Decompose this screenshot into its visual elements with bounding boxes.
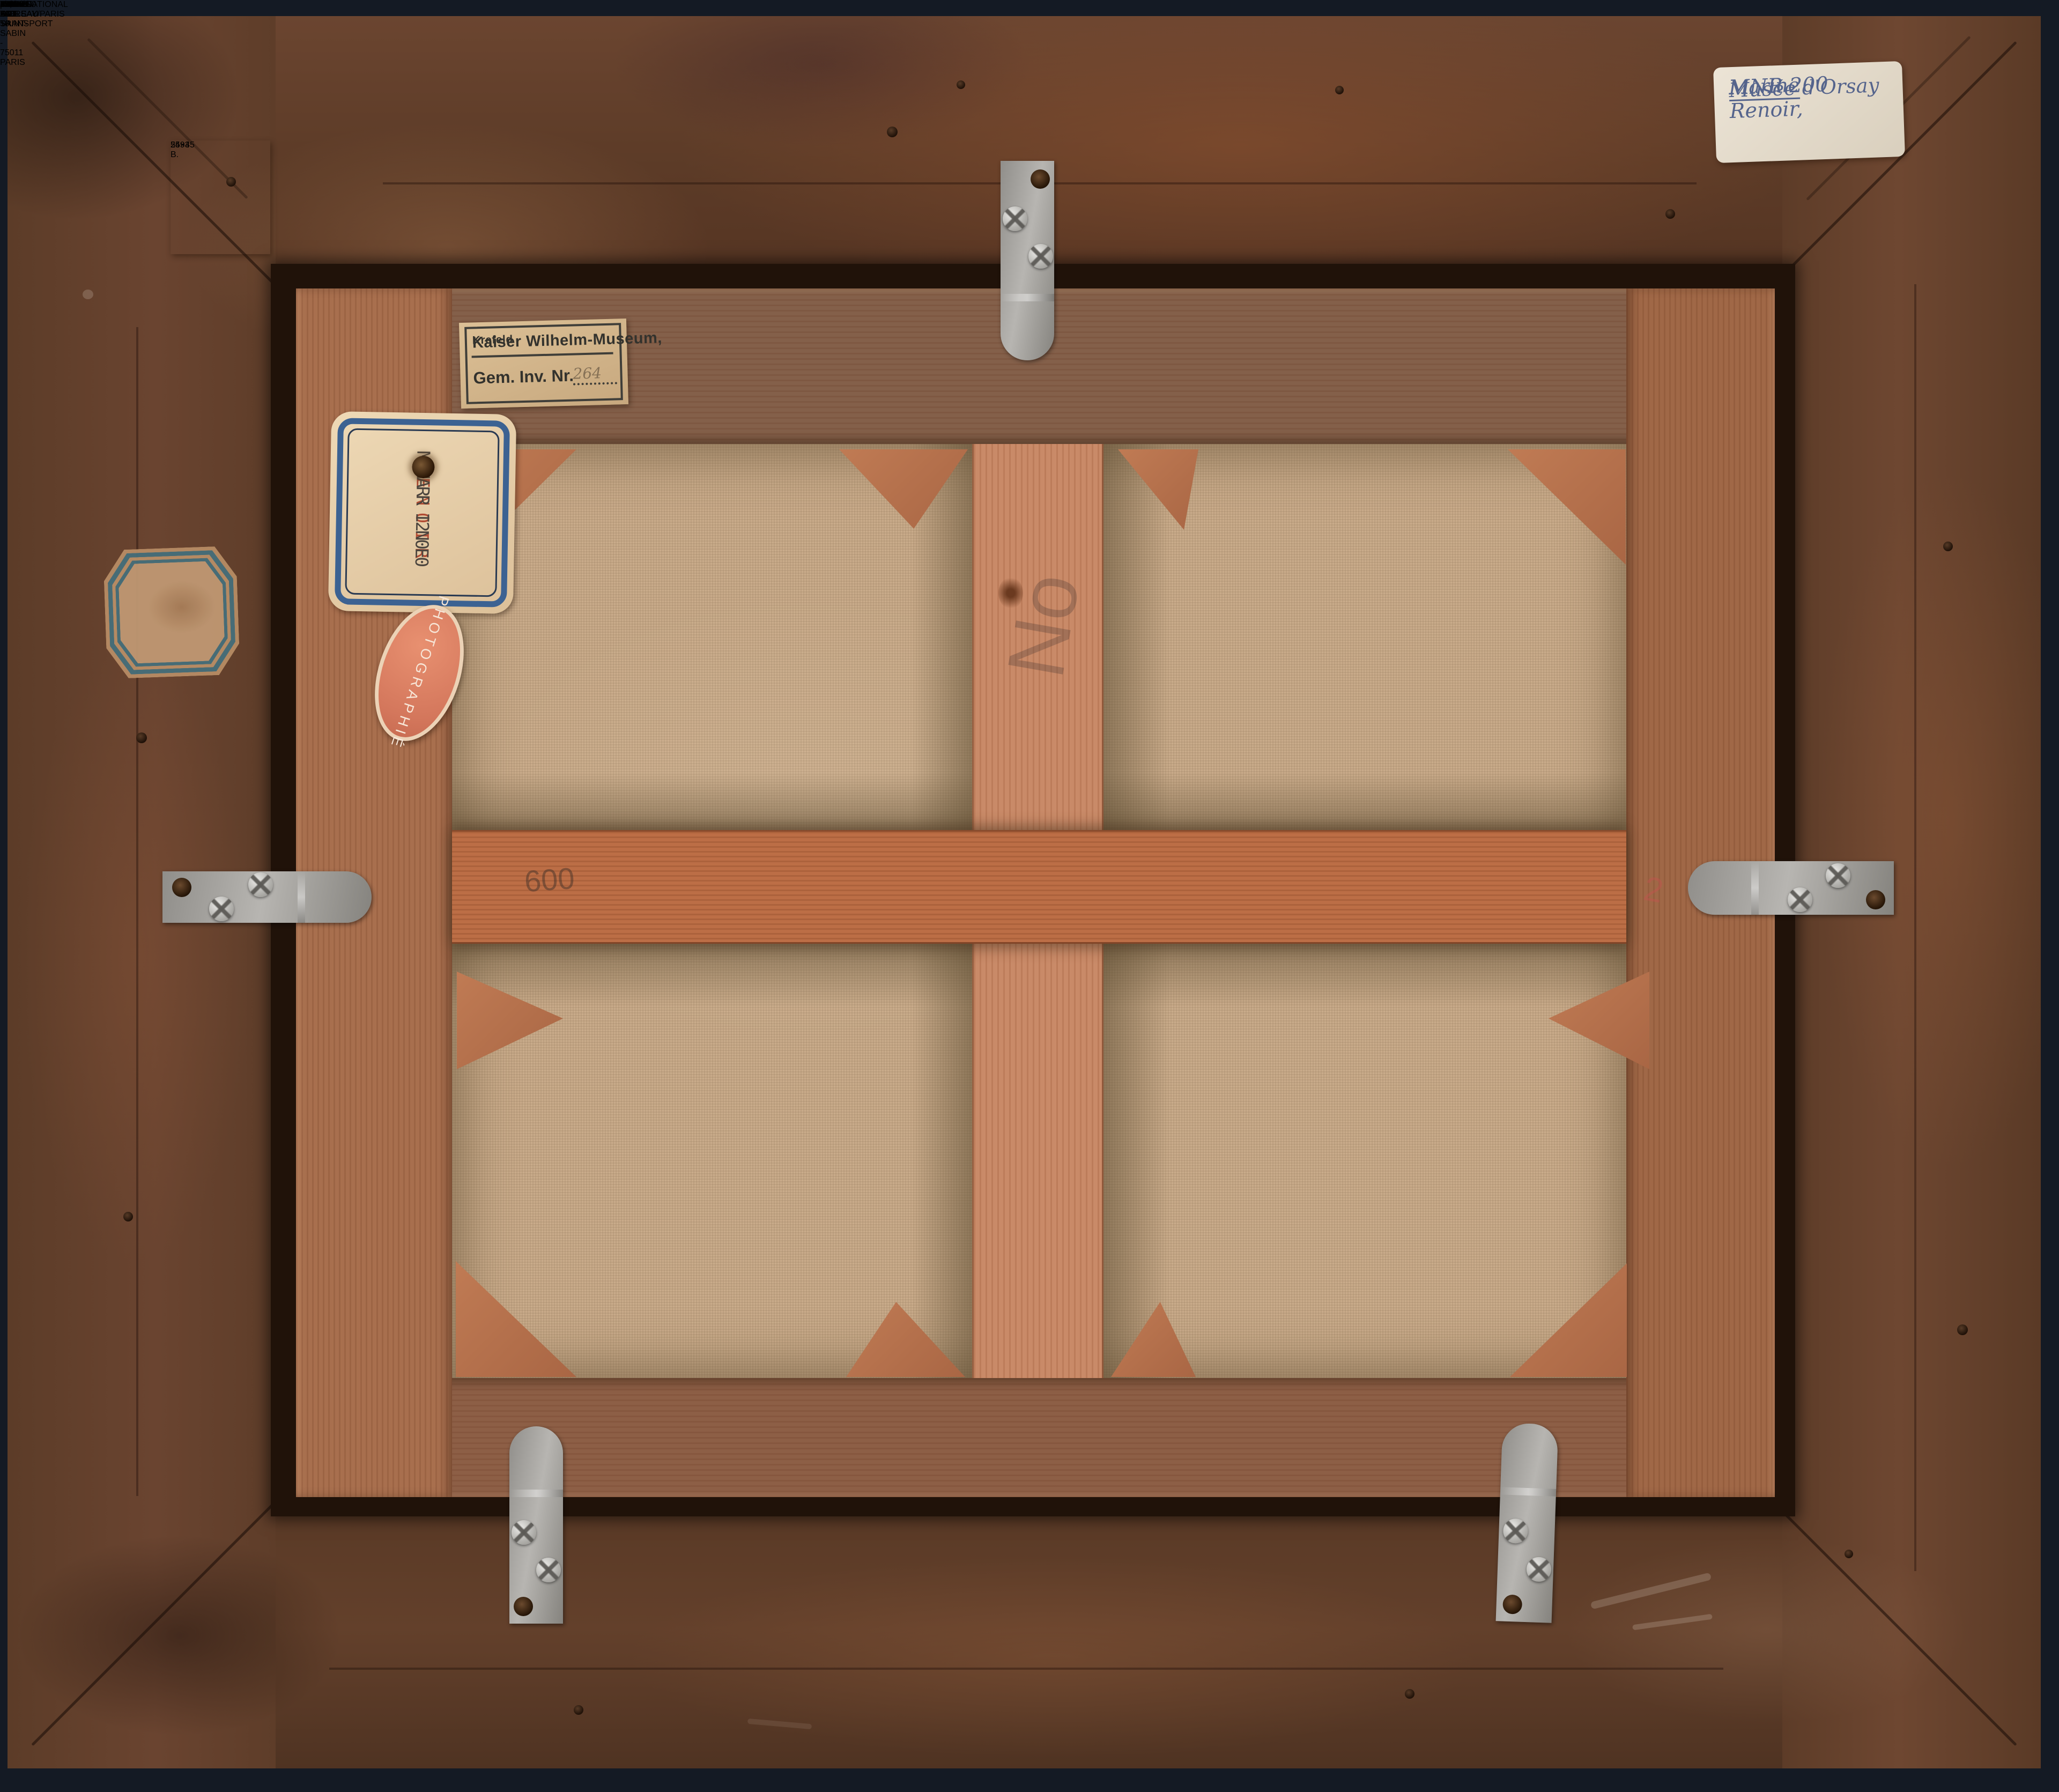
scuff-mark	[747, 1719, 812, 1729]
bracket-bend	[509, 1490, 563, 1497]
bracket-screw	[1503, 1518, 1529, 1544]
bracket-hole	[1866, 890, 1885, 909]
board-seam	[136, 327, 138, 1496]
label-layer	[118, 561, 225, 664]
bracket-screw	[1028, 244, 1053, 269]
nail-hole	[1943, 542, 1953, 551]
paint-fleck	[83, 290, 93, 299]
frame-bottom-board	[8, 1514, 2041, 1768]
nail-hole	[887, 127, 898, 137]
bracket-hole	[1031, 169, 1050, 189]
wood-knot	[998, 577, 1023, 609]
bracket-hole	[1502, 1595, 1522, 1615]
handwritten-inventory-label: MNR 200 Renoir, Marine Musée d'Orsay	[1713, 61, 1905, 163]
inventory-field: Gem. Inv. Nr.	[473, 366, 574, 388]
bracket-hole	[514, 1597, 533, 1616]
nail-hole	[1665, 209, 1675, 219]
mnr-card-label: MNR 200 RENOIR MARINE	[328, 411, 516, 614]
hanging-bracket-top	[1001, 161, 1054, 360]
bracket-bend	[1751, 861, 1759, 915]
bracket-screw	[1826, 863, 1850, 888]
nail-hole	[574, 1705, 583, 1715]
bracket-bend	[1001, 294, 1054, 301]
frame-number-label: 2593 B. 54×45	[171, 140, 270, 254]
crossbar-horizontal	[452, 830, 1626, 944]
board-seam	[1914, 284, 1916, 1571]
photo-back-of-painting: No 600 2 MNR 200 Kaiser Wilhelm-Museum, …	[0, 0, 2059, 1792]
ink-scribble: 600	[523, 861, 576, 899]
hanging-bracket-left	[162, 871, 372, 923]
nail-hole	[1957, 1324, 1968, 1335]
bracket-bend	[1500, 1487, 1556, 1497]
inventory-value: 264	[573, 364, 602, 382]
bracket-screw	[536, 1558, 561, 1582]
kaiser-wilhelm-museum-label: Kaiser Wilhelm-Museum, Krefeld Gem. Inv.…	[459, 319, 628, 409]
hanging-bracket-bottom-left	[509, 1426, 563, 1624]
nail-hole	[957, 80, 965, 89]
nail-hole	[1845, 1550, 1853, 1558]
board-seam	[329, 1668, 1723, 1670]
frame-number-size: 54×45	[171, 140, 195, 150]
bracket-screw	[1003, 206, 1027, 231]
bracket-screw	[1526, 1557, 1552, 1582]
nail-hole	[136, 732, 147, 743]
nail-hole	[1405, 1689, 1414, 1699]
hanging-bracket-right	[1688, 861, 1894, 915]
miter-seam	[1769, 1498, 2017, 1746]
bracket-bend	[298, 871, 305, 923]
scuff-mark	[1632, 1614, 1713, 1631]
museum-city-text: Krefeld	[472, 333, 513, 347]
scuff-mark	[1590, 1572, 1712, 1609]
hanging-bracket-bottom-right	[1496, 1423, 1559, 1623]
nail-hole	[1335, 86, 1344, 94]
lender-field-value: MUSEE D'ORSAY/PARIS	[0, 0, 65, 19]
miter-seam	[31, 1498, 279, 1746]
worn-octagonal-label	[103, 546, 240, 679]
bracket-screw	[209, 897, 234, 921]
bracket-hole	[172, 878, 191, 897]
bracket-screw	[1788, 887, 1812, 912]
bracket-screw	[512, 1520, 536, 1545]
card-text: MNR 200 RENOIR MARINE	[328, 411, 516, 614]
nail-hole	[123, 1212, 133, 1221]
bracket-screw	[248, 872, 273, 897]
